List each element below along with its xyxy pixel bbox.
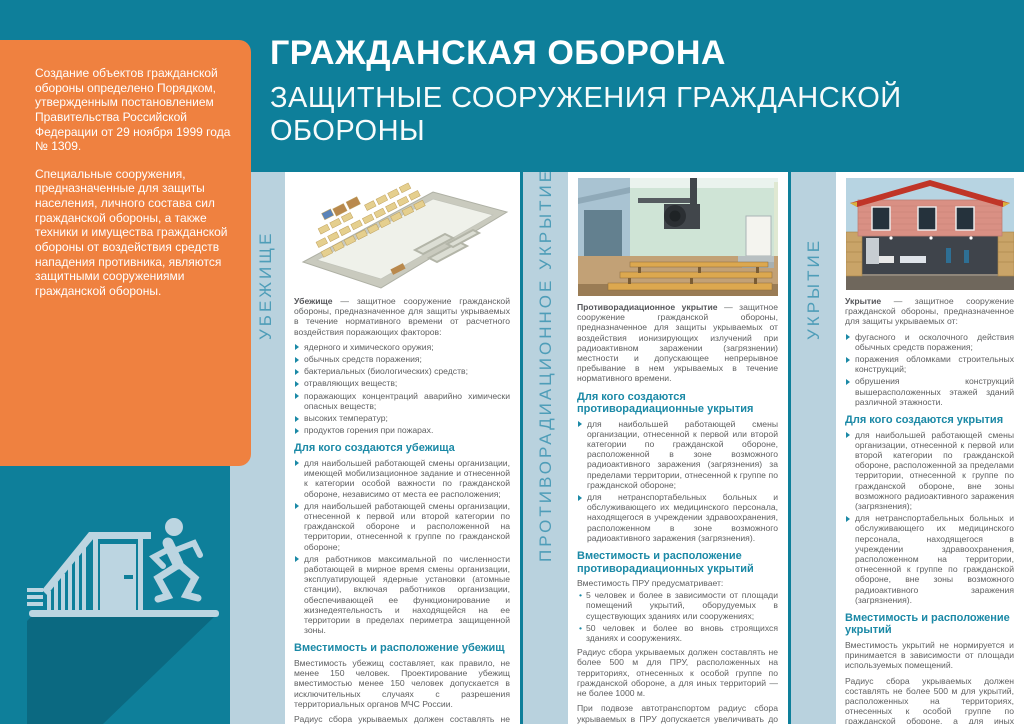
arrow-bullet-icon — [295, 503, 299, 509]
capacity-option: •5 человек и более в зависимости от площ… — [577, 590, 778, 621]
factor-item: поражения обломками строительных констру… — [845, 354, 1014, 374]
arrow-bullet-icon — [578, 421, 582, 427]
section-heading-who: Для кого создаются укрытия — [845, 414, 1014, 427]
factor-item: обрушения конструкций вышерасположенных … — [845, 376, 1014, 407]
card-ukrytie-label: УКРЫТИЕ — [804, 238, 824, 340]
card-ukrytie: УКРЫТИЕ — [791, 172, 1024, 724]
intro-panel: Создание объектов гражданской обороны оп… — [0, 40, 251, 466]
capacity-paragraph: Вместимость убежищ составляет, как прави… — [294, 658, 510, 709]
arrow-bullet-icon — [295, 357, 299, 363]
who-item: для наибольшей работающей смены организа… — [577, 419, 778, 490]
section-heading-capacity: Вместимость и расположение убежищ — [294, 642, 510, 655]
section-heading-capacity: Вместимость и расположение укрытий — [845, 612, 1014, 637]
factor-item: отравляющих веществ; — [294, 378, 510, 388]
card-intro: Укрытие — защитное сооружение гражданско… — [845, 296, 1014, 327]
section-heading-who: Для кого создаются противорадиационные у… — [577, 391, 778, 416]
ground-line — [29, 610, 219, 617]
capacity-paragraph: Радиус сбора укрываемых должен составлят… — [294, 714, 510, 724]
capacity-paragraph: При подвозе автотранспортом радиус сбора… — [577, 703, 778, 724]
arrow-bullet-icon — [295, 381, 299, 387]
factor-item: бактериальных (биологических) средств; — [294, 366, 510, 376]
card-term: Укрытие — [845, 296, 881, 306]
bunker-cutaway-illustration — [295, 178, 510, 290]
dot-bullet-icon: • — [579, 590, 582, 621]
arrow-bullet-icon — [295, 416, 299, 422]
capacity-paragraph: Радиус сбора укрываемых должен составлят… — [845, 676, 1014, 724]
factor-item: поражающих концентраций аварийно химичес… — [294, 391, 510, 411]
factor-item: обычных средств поражения; — [294, 354, 510, 364]
dot-bullet-icon: • — [579, 623, 582, 643]
card-intro: Противорадиационное укрытие — защитное с… — [577, 302, 778, 384]
card-pru-content: Противорадиационное укрытие — защитное с… — [568, 172, 788, 724]
section-heading-who: Для кого создаются убежища — [294, 442, 510, 455]
who-item: для наибольшей работающей смены организа… — [294, 501, 510, 552]
card-intro: Убежище — защитное сооружение гражданско… — [294, 296, 510, 337]
poster-header: ГРАЖДАНСКАЯ ОБОРОНА ЗАЩИТНЫЕ СООРУЖЕНИЯ … — [270, 34, 910, 149]
arrow-bullet-icon — [295, 460, 299, 466]
factor-item: ядерного и химического оружия; — [294, 342, 510, 352]
capacity-option: •50 человек и более во вновь строящихся … — [577, 623, 778, 643]
arrow-bullet-icon — [295, 556, 299, 562]
capacity-paragraph: Вместимость укрытий не нормируется и при… — [845, 640, 1014, 671]
arrow-bullet-icon — [846, 516, 850, 522]
door-handle — [124, 575, 133, 579]
card-pru: ПРОТИВОРАДИАЦИОННОЕ УКРЫТИЕ — [523, 172, 788, 724]
card-term: Убежище — [294, 296, 333, 306]
capacity-intro: Вместимость ПРУ предусматривает: — [577, 578, 778, 588]
basement-shelter-cutaway-illustration — [578, 178, 778, 296]
embankment — [42, 532, 94, 610]
capacity-paragraph: Радиус сбора укрываемых должен составлят… — [577, 647, 778, 698]
card-ukrytie-content: Укрытие — защитное сооружение гражданско… — [836, 172, 1024, 724]
factor-item: фугасного и осколочного действия обычных… — [845, 332, 1014, 352]
card-ubezhishche: УБЕЖИЩЕ Убежище — защитное сооружение гр… — [230, 172, 520, 724]
arrow-bullet-icon — [846, 432, 850, 438]
arrow-bullet-icon — [295, 428, 299, 434]
arrow-bullet-icon — [295, 369, 299, 375]
arrow-bullet-icon — [295, 344, 299, 350]
who-item: для нетранспортабельных больных и обслуж… — [577, 492, 778, 543]
running-person — [154, 518, 200, 599]
arrow-bullet-icon — [578, 495, 582, 501]
arrow-bullet-icon — [846, 379, 850, 385]
section-heading-capacity: Вместимость и расположение противорадиац… — [577, 550, 778, 575]
run-to-shelter-icon — [27, 498, 257, 724]
factor-item: продуктов горения при пожарах. — [294, 425, 510, 435]
arrow-bullet-icon — [295, 393, 299, 399]
arrow-bullet-icon — [846, 357, 850, 363]
card-term: Противорадиационное укрытие — [577, 302, 718, 312]
card-ubezhishche-label: УБЕЖИЩЕ — [256, 231, 276, 341]
who-item: для наибольшей работающей смены организа… — [294, 458, 510, 499]
intro-paragraph-2: Специальные сооружения, предназначенные … — [35, 167, 231, 299]
shelter-door — [89, 532, 151, 611]
card-ubezhishche-content: Убежище — защитное сооружение гражданско… — [285, 172, 520, 724]
who-item: для наибольшей работающей смены организа… — [845, 430, 1014, 512]
factor-item: высоких температур; — [294, 413, 510, 423]
house-over-shelter-illustration — [846, 178, 1014, 290]
arrow-bullet-icon — [846, 334, 850, 340]
who-item: для нетранспортабельных больных и обслуж… — [845, 513, 1014, 605]
who-item: для работников максимальной по численнос… — [294, 554, 510, 636]
intro-paragraph-1: Создание объектов гражданской обороны оп… — [35, 66, 231, 154]
poster-subtitle: ЗАЩИТНЫЕ СООРУЖЕНИЯ ГРАЖДАНСКОЙ ОБОРОНЫ — [270, 82, 910, 149]
poster-title: ГРАЖДАНСКАЯ ОБОРОНА — [270, 34, 910, 73]
card-pru-label: ПРОТИВОРАДИАЦИОННОЕ УКРЫТИЕ — [536, 172, 556, 562]
pictogram-shadow — [27, 616, 215, 724]
